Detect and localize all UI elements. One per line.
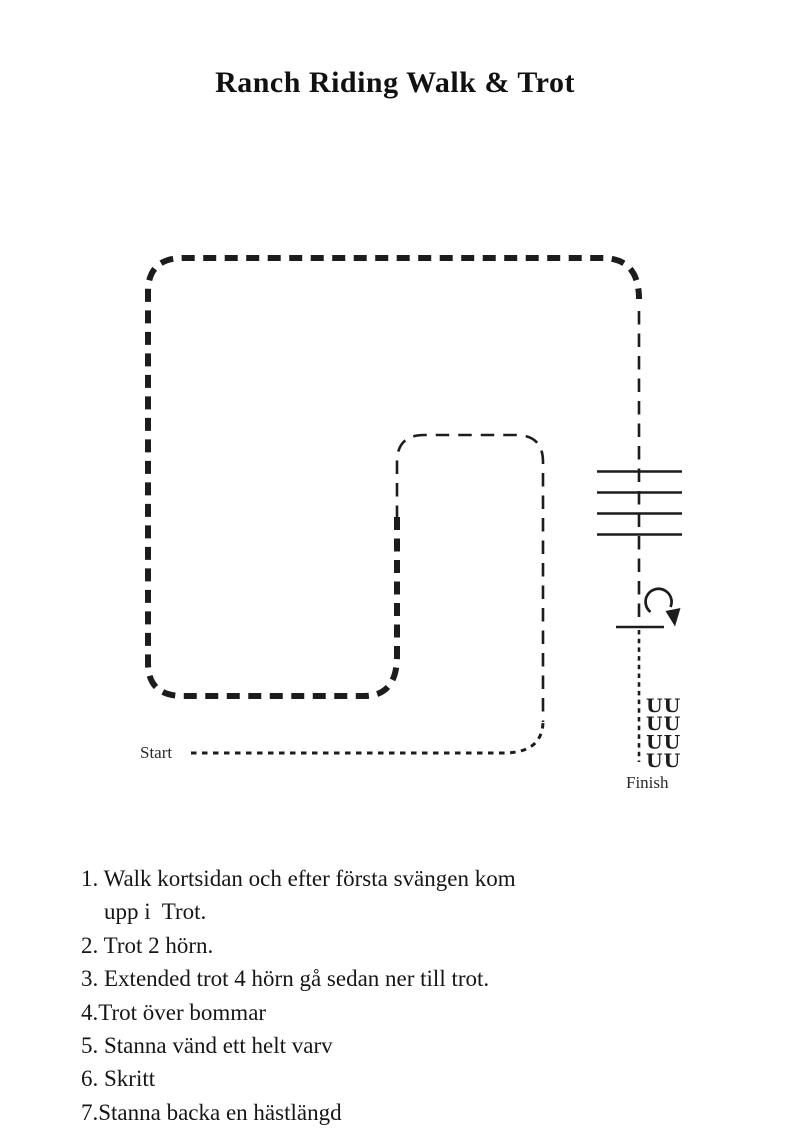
riding-pattern-diagram: UU UU UU UU Start Finish	[0, 0, 800, 800]
instruction-item-4: 4.Trot över bommar	[81, 996, 661, 1029]
instruction-item-5: 5. Stanna vänd ett helt varv	[81, 1029, 661, 1062]
extended-trot-path	[148, 258, 639, 696]
instruction-item-6: 6. Skritt	[81, 1062, 661, 1095]
instruction-item-2: 2. Trot 2 hörn.	[81, 929, 661, 962]
start-label: Start	[140, 743, 172, 762]
full-turn-arc	[646, 589, 672, 612]
finish-label: Finish	[626, 773, 669, 792]
instruction-item-3: 3. Extended trot 4 hörn gå sedan ner til…	[81, 962, 661, 995]
trot-path-inner	[397, 435, 543, 722]
hoofprint-row: UU	[646, 750, 681, 772]
full-turn-arrowhead	[666, 608, 681, 627]
pattern-sheet-page: Ranch Riding Walk & Trot UU UU	[0, 0, 800, 1132]
instruction-item-1: 1. Walk kortsidan och efter första sväng…	[81, 862, 661, 929]
hoofprint-back-marks: UU UU UU UU	[646, 695, 681, 772]
full-turn-arrow-icon	[646, 589, 681, 627]
instruction-list: 1. Walk kortsidan och efter första sväng…	[81, 862, 661, 1129]
walk-path-start	[191, 721, 543, 753]
instruction-item-7: 7.Stanna backa en hästlängd	[81, 1096, 661, 1129]
